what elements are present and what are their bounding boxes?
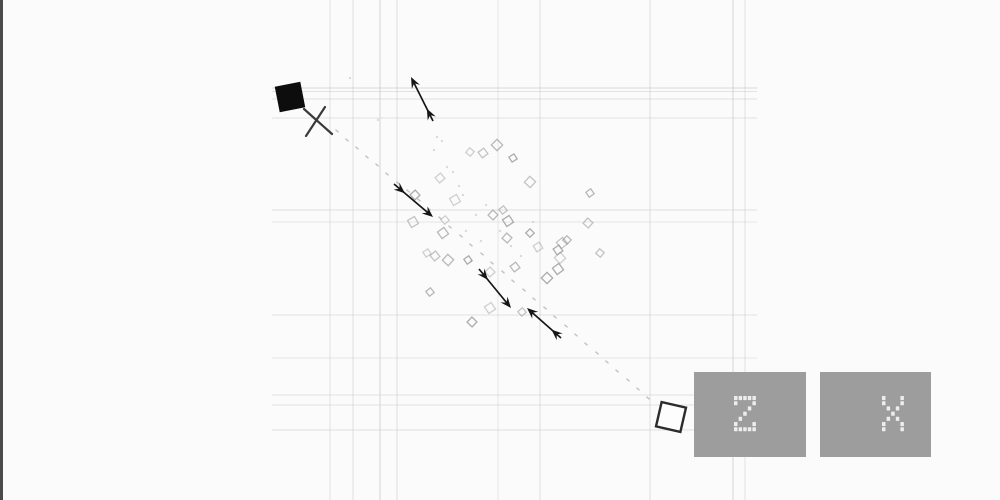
glyph-pixel bbox=[747, 396, 751, 400]
glyph-pixel bbox=[882, 427, 886, 431]
glyph-pixel bbox=[896, 407, 900, 411]
glyph-pixel bbox=[743, 396, 747, 400]
glyph-pixel bbox=[882, 401, 886, 405]
glyph-pixel bbox=[752, 427, 756, 431]
glyph-pixel bbox=[882, 396, 886, 400]
glyph-pixel bbox=[900, 422, 904, 426]
glyph-pixel bbox=[738, 417, 742, 421]
player-square-icon bbox=[275, 82, 305, 112]
button-z[interactable] bbox=[694, 372, 806, 457]
glyph-pixel bbox=[900, 401, 904, 405]
key-z-glyph-icon bbox=[734, 396, 757, 432]
button-x[interactable] bbox=[820, 372, 931, 457]
game-stage[interactable] bbox=[0, 0, 1000, 500]
glyph-pixel bbox=[752, 401, 756, 405]
glyph-pixel bbox=[887, 417, 891, 421]
glyph-pixel bbox=[752, 396, 756, 400]
glyph-pixel bbox=[738, 427, 742, 431]
glyph-pixel bbox=[882, 422, 886, 426]
glyph-pixel bbox=[747, 427, 751, 431]
glyph-pixel bbox=[734, 422, 738, 426]
glyph-pixel bbox=[734, 401, 738, 405]
glyph-pixel bbox=[743, 412, 747, 416]
glyph-pixel bbox=[734, 396, 738, 400]
glyph-pixel bbox=[900, 427, 904, 431]
glyph-pixel bbox=[900, 396, 904, 400]
glyph-pixel bbox=[734, 427, 738, 431]
glyph-pixel bbox=[743, 427, 747, 431]
glyph-pixel bbox=[891, 412, 895, 416]
glyph-pixel bbox=[738, 396, 742, 400]
target-square-icon bbox=[656, 402, 686, 432]
glyph-pixel bbox=[896, 417, 900, 421]
glyph-pixel bbox=[752, 422, 756, 426]
glyph-pixel bbox=[747, 407, 751, 411]
key-x-glyph-icon bbox=[882, 396, 905, 432]
glyph-pixel bbox=[887, 407, 891, 411]
